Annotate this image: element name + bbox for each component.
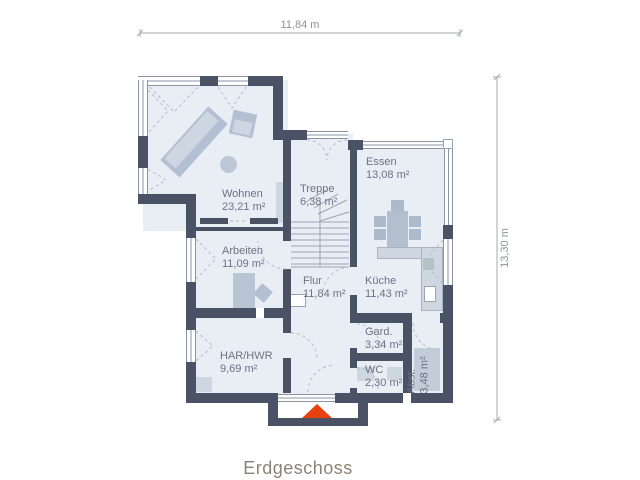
window-opening-mark: [424, 240, 443, 284]
room-label-har-hwr: HAR/HWR 9,69 m²: [220, 350, 273, 376]
room-label-kueche: Küche 11,43 m²: [365, 275, 408, 301]
window-opening-mark: [196, 331, 213, 361]
window-opening-mark: [148, 169, 166, 191]
height-dimension-label: 13,30 m: [499, 228, 511, 268]
dimension-lines: [137, 29, 501, 423]
width-dimension-label: 11,84 m: [281, 19, 320, 31]
room-label-wc: WC 2,30 m²: [365, 364, 402, 390]
door-arc-abst: [413, 323, 439, 350]
room-label-essen: Essen 13,08 m²: [366, 156, 409, 182]
window-opening-mark: [218, 87, 246, 108]
room-label-treppe: Treppe 6,38 m²: [300, 183, 337, 209]
door-arc-terrace-right: [327, 140, 347, 160]
room-label-arbeiten: Arbeiten 11,09 m²: [222, 245, 265, 271]
window-opening-mark: [196, 239, 216, 279]
entrance-arrow-icon: [302, 404, 332, 418]
room-label-gard: Gard. 3,34 m²: [365, 326, 402, 352]
room-label-flur: Flur 11,84 m²: [303, 275, 346, 301]
window-opening-mark: [148, 90, 168, 133]
floor-plan-canvas: 11,84 m 13,30 m Wohnen 23,21 m² Treppe 6…: [0, 0, 640, 480]
door-arc-har: [291, 333, 317, 359]
door-arc-entrance: [308, 365, 335, 392]
room-label-wohnen: Wohnen 23,21 m²: [222, 188, 265, 214]
page-title: Erdgeschoss: [148, 458, 448, 479]
door-arc-terrace-left: [307, 140, 327, 160]
room-label-abst: Abst. 3,48 m²: [406, 356, 432, 393]
